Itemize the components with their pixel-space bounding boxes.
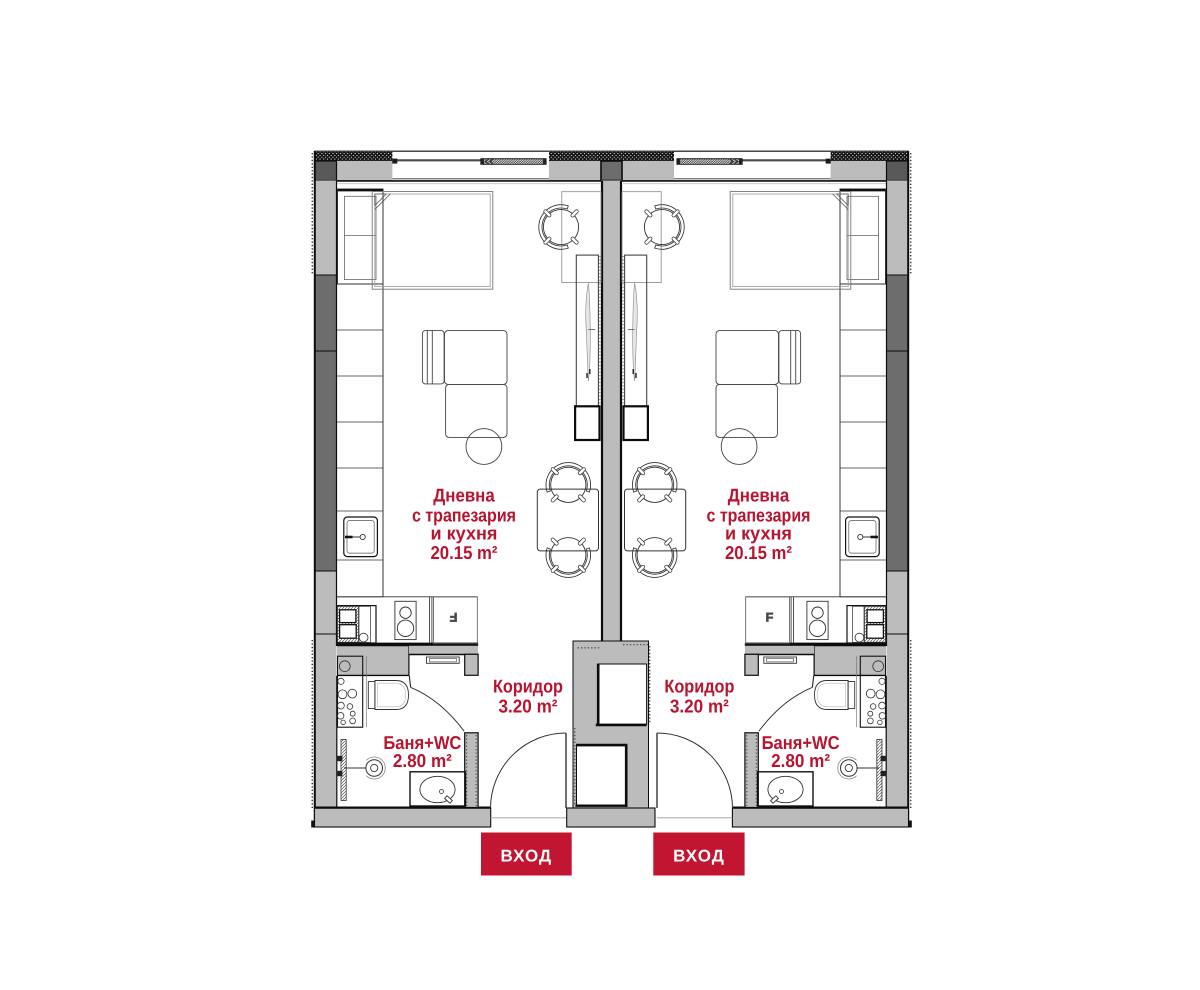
svg-text:ВХОД: ВХОД bbox=[673, 847, 725, 866]
svg-text:3.20 m²: 3.20 m² bbox=[499, 696, 558, 717]
svg-text:20.15 m²: 20.15 m² bbox=[725, 542, 792, 563]
svg-text:2.80 m²: 2.80 m² bbox=[771, 750, 830, 771]
svg-text:ВХОД: ВХОД bbox=[500, 847, 552, 866]
svg-text:3.20 m²: 3.20 m² bbox=[670, 696, 729, 717]
svg-text:20.15 m²: 20.15 m² bbox=[431, 542, 498, 563]
svg-text:F: F bbox=[766, 611, 774, 625]
svg-text:Коридор: Коридор bbox=[664, 676, 734, 697]
svg-text:и кухня: и кухня bbox=[431, 523, 498, 544]
svg-text:Дневна: Дневна bbox=[433, 485, 495, 506]
svg-text:2.80 m²: 2.80 m² bbox=[393, 750, 452, 771]
svg-text:F: F bbox=[449, 610, 457, 624]
svg-text:и кухня: и кухня bbox=[725, 523, 792, 544]
svg-text:Коридор: Коридор bbox=[493, 676, 563, 697]
svg-text:Дневна: Дневна bbox=[728, 485, 790, 506]
